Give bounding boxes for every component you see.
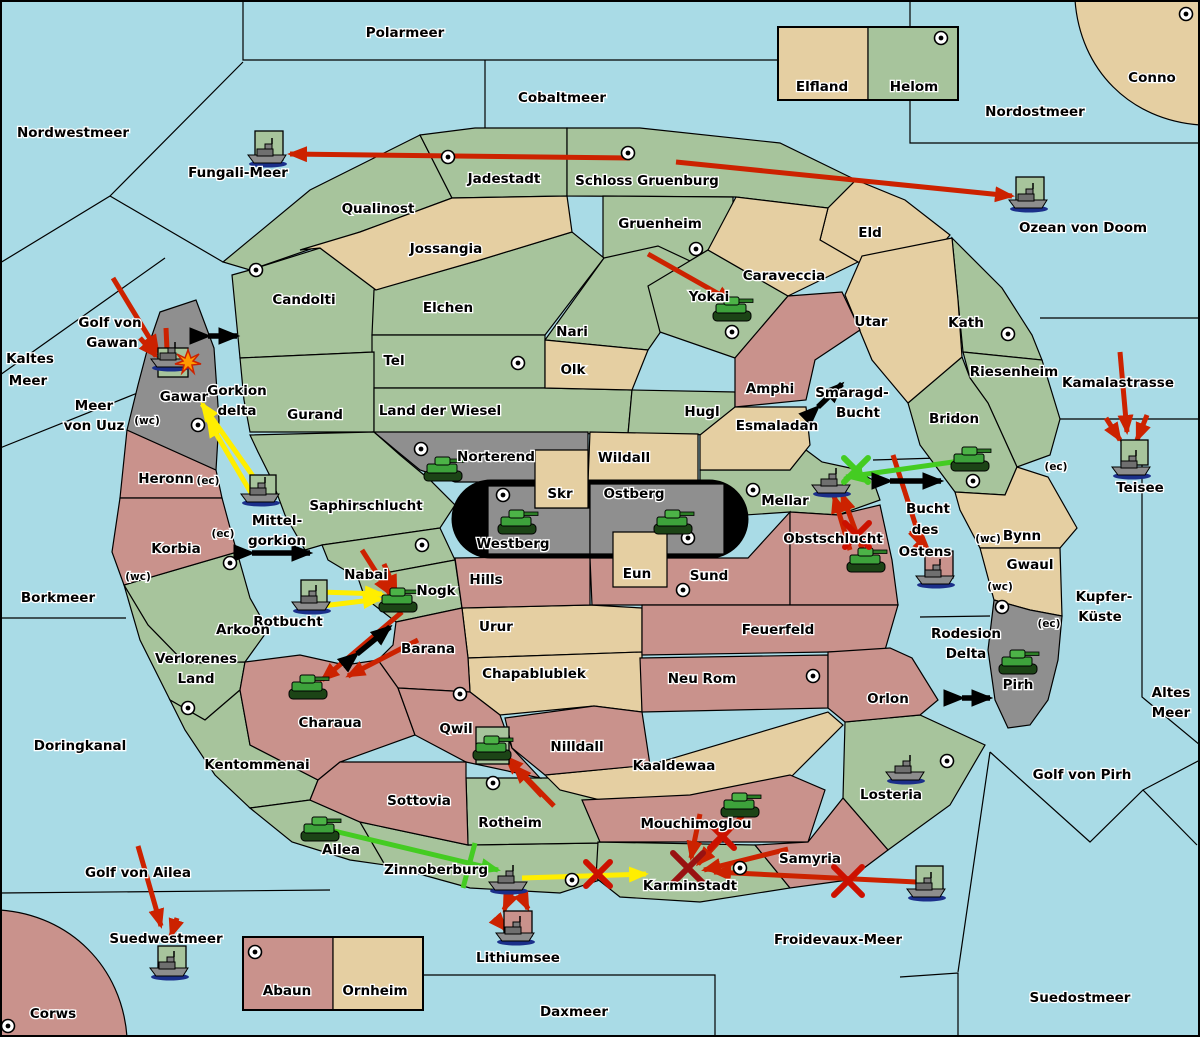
sea-label: Kamalastrasse bbox=[1062, 375, 1174, 391]
territory-label: Skr bbox=[547, 486, 573, 502]
territory-label: Yokai bbox=[688, 289, 730, 305]
territory-label: Feuerfeld bbox=[742, 622, 815, 638]
territory-label: Ornheim bbox=[342, 983, 407, 999]
city-marker bbox=[512, 357, 525, 370]
territory-label: Eun bbox=[623, 566, 651, 582]
territory-label: Abaun bbox=[263, 983, 311, 999]
territory-label: Karminstadt bbox=[643, 878, 738, 894]
sea-label: Meer bbox=[1152, 705, 1191, 721]
territory-label: Losteria bbox=[860, 787, 922, 803]
sea-label: Lithiumsee bbox=[476, 950, 560, 966]
sea-label: Delta bbox=[946, 646, 987, 662]
territory-label: Samyria bbox=[779, 851, 841, 867]
sea-label: Rodesion bbox=[931, 626, 1001, 642]
city-marker bbox=[1002, 328, 1015, 341]
territory-label: Riesenheim bbox=[970, 364, 1058, 380]
sea-label: Doringkanal bbox=[34, 738, 126, 754]
sea-label: Teisee bbox=[1116, 480, 1164, 496]
sea-label: Bucht bbox=[836, 405, 881, 421]
territory-label: Rotheim bbox=[478, 815, 542, 831]
territory-label: Olk bbox=[560, 362, 586, 378]
territory-label: Korbia bbox=[151, 541, 201, 557]
sea-label: Daxmeer bbox=[540, 1004, 608, 1020]
city-marker bbox=[249, 946, 262, 959]
coast-tag: (wc) bbox=[125, 571, 151, 583]
coast-tag: (wc) bbox=[987, 581, 1013, 593]
territory-label: Gawar bbox=[160, 389, 209, 405]
territory-label: Qualinost bbox=[342, 201, 415, 217]
game-map: Polarmeer Cobaltmeer Nordwestmeer Nordos… bbox=[0, 0, 1200, 1037]
territory-label: Gurand bbox=[287, 407, 343, 423]
sea-label: Suedostmeer bbox=[1030, 990, 1131, 1006]
city-marker bbox=[941, 755, 954, 768]
coast-tag: (wc) bbox=[134, 415, 160, 427]
territory-label: Hugl bbox=[684, 404, 719, 420]
territory-label: Heronn bbox=[138, 471, 194, 487]
arrow-red bbox=[166, 328, 167, 350]
territory-label: Arkoon bbox=[216, 622, 270, 638]
sea-label: Smaragd- bbox=[815, 385, 889, 401]
sea-label: Ozean von Doom bbox=[1019, 220, 1147, 236]
sea-label: Kupfer- bbox=[1076, 589, 1133, 605]
territory-label: Nari bbox=[556, 324, 588, 340]
territory-label: Helom bbox=[890, 79, 938, 95]
territory-label: Wildall bbox=[598, 450, 650, 466]
territory-label: Tel bbox=[383, 353, 404, 369]
city-marker bbox=[726, 326, 739, 339]
territory-label: Ailea bbox=[322, 842, 360, 858]
city-marker bbox=[224, 557, 237, 570]
sea-label: Bucht bbox=[906, 501, 951, 517]
territory-label: Land bbox=[178, 671, 215, 687]
territory-label: Bridon bbox=[929, 411, 979, 427]
coast-tag: (ec) bbox=[212, 528, 235, 540]
sea-label: Golf von Ailea bbox=[85, 865, 191, 881]
sea-label: Fungali-Meer bbox=[188, 165, 288, 181]
city-marker bbox=[677, 584, 690, 597]
city-marker bbox=[250, 264, 263, 277]
sea-label: Gorkion bbox=[207, 383, 267, 399]
city-marker bbox=[415, 443, 428, 456]
territory-label: Nogk bbox=[416, 583, 456, 599]
territory-label: Jossangia bbox=[409, 241, 483, 257]
territory-label: Barana bbox=[401, 641, 455, 657]
sea-label: Golf von Pirh bbox=[1033, 767, 1132, 783]
territory-label: Eld bbox=[858, 225, 882, 241]
sea-label: Nordostmeer bbox=[985, 104, 1085, 120]
territory-label: Candolti bbox=[272, 292, 335, 308]
sea-label: Meer bbox=[75, 398, 114, 414]
territory-label: Elfland bbox=[796, 79, 848, 95]
sea-label: Corws bbox=[30, 1006, 76, 1022]
territory-label: Urur bbox=[479, 619, 513, 635]
territory-label: Norterend bbox=[457, 449, 535, 465]
territory-obstschlucht[interactable] bbox=[790, 505, 898, 605]
territory-label: Amphi bbox=[746, 381, 794, 397]
territory-label: Orlon bbox=[867, 691, 909, 707]
territory-label: Elchen bbox=[423, 300, 473, 316]
territory-label: Zinnoberburg bbox=[384, 862, 488, 878]
territory-label: Bynn bbox=[1003, 528, 1041, 544]
city-marker bbox=[967, 475, 980, 488]
city-marker bbox=[2, 1020, 15, 1033]
territory-label: Obstschlucht bbox=[783, 531, 883, 547]
city-marker bbox=[747, 484, 760, 497]
territory-label: Chapablublek bbox=[482, 666, 587, 682]
territory-label: Mouchimoglou bbox=[640, 816, 751, 832]
coast-tag: (ec) bbox=[1038, 618, 1061, 630]
map-svg: Polarmeer Cobaltmeer Nordwestmeer Nordos… bbox=[0, 0, 1200, 1037]
territory-label: Ostberg bbox=[603, 486, 664, 502]
city-marker bbox=[454, 688, 467, 701]
city-marker bbox=[442, 151, 455, 164]
territory-label: Jadestadt bbox=[467, 171, 541, 187]
city-marker bbox=[416, 539, 429, 552]
sea-label: Froidevaux-Meer bbox=[774, 932, 902, 948]
city-marker bbox=[690, 243, 703, 256]
territory-label: Verlorenes bbox=[155, 651, 237, 667]
city-marker bbox=[734, 862, 747, 875]
sea-label: Borkmeer bbox=[21, 590, 96, 606]
sea-label: von Uuz bbox=[64, 418, 125, 434]
territory-label: Westberg bbox=[476, 536, 549, 552]
sea-label: Gawan bbox=[86, 335, 137, 351]
territory-label: Sottovia bbox=[387, 793, 451, 809]
city-marker bbox=[182, 702, 195, 715]
territory-label: Charaua bbox=[298, 715, 361, 731]
city-marker bbox=[807, 670, 820, 683]
sea-label: gorkion bbox=[248, 533, 306, 549]
territory-label: Nabai bbox=[344, 567, 388, 583]
sea-label: Polarmeer bbox=[366, 25, 445, 41]
arrow-yellow bbox=[320, 592, 382, 594]
sea-label: Kaltes bbox=[6, 351, 54, 367]
territory-label: Neu Rom bbox=[668, 671, 737, 687]
territory-label: Saphirschlucht bbox=[309, 498, 423, 514]
sea-label: Conno bbox=[1128, 70, 1176, 86]
city-marker bbox=[566, 874, 579, 887]
territory-label: Qwil bbox=[439, 721, 472, 737]
coast-tag: (wc) bbox=[975, 533, 1001, 545]
territory-chapablublek[interactable] bbox=[468, 652, 642, 715]
territory-label: Mellar bbox=[761, 493, 809, 509]
territory-ornheim[interactable] bbox=[333, 937, 423, 1010]
city-marker bbox=[622, 147, 635, 160]
sea-label: Meer bbox=[9, 373, 48, 389]
sea-label: des bbox=[912, 522, 939, 538]
city-marker bbox=[487, 777, 500, 790]
territory-label: Gwaul bbox=[1007, 557, 1054, 573]
coast-tag: (ec) bbox=[197, 475, 220, 487]
territory-label: Land der Wiesel bbox=[379, 403, 501, 419]
territory-label: Caraveccia bbox=[743, 268, 825, 284]
city-marker bbox=[996, 601, 1009, 614]
sea-label: Küste bbox=[1078, 609, 1121, 625]
territory-label: Sund bbox=[690, 568, 729, 584]
sea-label: Mittel- bbox=[252, 513, 302, 529]
territory-label: Esmaladan bbox=[736, 418, 819, 434]
territory-label: Schloss Gruenburg bbox=[575, 173, 719, 189]
sea-label: Altes bbox=[1152, 685, 1191, 701]
territory-label: Gruenheim bbox=[618, 216, 702, 232]
sea-label: Nordwestmeer bbox=[17, 125, 129, 141]
territory-label: Pirh bbox=[1003, 677, 1034, 693]
city-marker bbox=[935, 32, 948, 45]
territory-label: Hills bbox=[469, 572, 502, 588]
territory-label: Kentommenai bbox=[204, 757, 309, 773]
sea-label: delta bbox=[217, 403, 256, 419]
sea-label: Golf von bbox=[78, 315, 141, 331]
territory-label: Nilldall bbox=[550, 739, 603, 755]
sea-label: Suedwestmeer bbox=[109, 931, 223, 947]
coast-tag: (ec) bbox=[1045, 461, 1068, 473]
territory-label: Utar bbox=[854, 314, 888, 330]
sea-label: Ostens bbox=[899, 544, 952, 560]
territory-label: Kaaldewaa bbox=[633, 758, 716, 774]
city-marker bbox=[192, 419, 205, 432]
city-marker bbox=[1180, 8, 1193, 21]
sea-label: Cobaltmeer bbox=[518, 90, 606, 106]
territory-label: Kath bbox=[948, 315, 984, 331]
city-marker bbox=[497, 489, 510, 502]
